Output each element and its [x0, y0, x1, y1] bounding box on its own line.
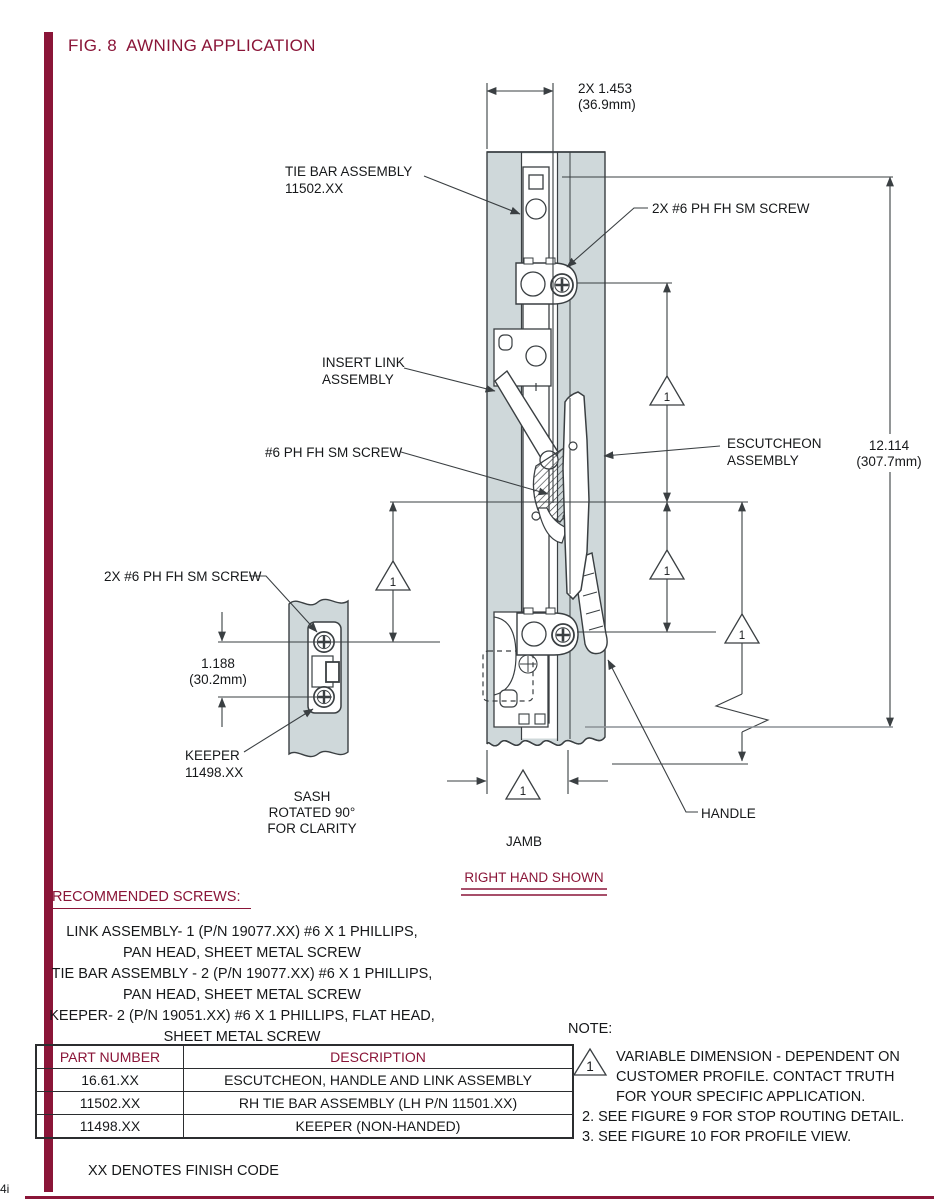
guide-bracket-hole: [526, 346, 546, 366]
label-keeper: KEEPER: [185, 748, 240, 763]
dim-height-mm: (307.7mm): [856, 454, 921, 469]
recommended-screws-section: RECOMMENDED SCREWS: LINK ASSEMBLY- 1 (P/…: [27, 889, 457, 1048]
label-keeper-part: 11498.XX: [185, 765, 243, 780]
screw-item-line: PAN HEAD, SHEET METAL SCREW: [27, 943, 457, 964]
escutcheon-plate: [563, 392, 589, 599]
dim-height-in: 12.114: [869, 438, 910, 453]
label-screw-keeper: 2X #6 PH FH SM SCREW: [104, 569, 262, 584]
description-cell: RH TIE BAR ASSEMBLY (LH P/N 11501.XX): [184, 1092, 574, 1115]
label-sash-3: FOR CLARITY: [267, 821, 356, 836]
description-cell: KEEPER (NON-HANDED): [184, 1115, 574, 1139]
part-number-cell: 16.61.XX: [36, 1069, 184, 1092]
flag-number: 1: [390, 577, 396, 589]
flag-number: 1: [664, 566, 670, 578]
phillips-screw-icon: [552, 624, 574, 646]
technical-drawing: 1 1 1 1 1 2X 1.453 (36.9mm) 12.114 (307.…: [0, 0, 934, 912]
col-header-part-number: PART NUMBER: [36, 1045, 184, 1069]
table-row: 11502.XX RH TIE BAR ASSEMBLY (LH P/N 115…: [36, 1092, 573, 1115]
part-number-cell: 11502.XX: [36, 1092, 184, 1115]
figure-page: FIG. 8 AWNING APPLICATION: [0, 0, 934, 1203]
top-bracket-hole: [521, 272, 545, 296]
col-header-description: DESCRIPTION: [184, 1045, 574, 1069]
top-bracket-tab: [546, 258, 555, 264]
label-tie-bar-assembly: TIE BAR ASSEMBLY: [285, 164, 412, 179]
bottom-rule: [25, 1196, 934, 1199]
dim-width-mm: (36.9mm): [578, 97, 636, 112]
flag-number: 1: [586, 1059, 594, 1074]
label-screw-top: 2X #6 PH FH SM SCREW: [652, 201, 810, 216]
screw-item-line: PAN HEAD, SHEET METAL SCREW: [27, 985, 457, 1006]
label-escutcheon-2: ASSEMBLY: [727, 453, 799, 468]
label-sash-1: SASH: [294, 789, 331, 804]
note-item-3: 3. SEE FIGURE 10 FOR PROFILE VIEW.: [582, 1127, 924, 1147]
label-tie-bar-part: 11502.XX: [285, 181, 343, 196]
note-1-line: CUSTOMER PROFILE. CONTACT TRUTH: [616, 1067, 900, 1087]
page-mark: 4i: [0, 1182, 9, 1196]
bottom-bracket-tab: [546, 608, 555, 614]
bottom-guide-slot: [500, 690, 517, 707]
note-heading: NOTE:: [568, 1019, 924, 1039]
table-row: 11498.XX KEEPER (NON-HANDED): [36, 1115, 573, 1139]
dim-keeper-in: 1.188: [201, 656, 235, 671]
label-handle: HANDLE: [701, 806, 756, 821]
tie-bar-square-hole: [529, 175, 543, 189]
guide-bracket-slot: [499, 335, 512, 350]
phillips-screw-icon: [551, 274, 573, 296]
label-screw-mid: #6 PH FH SM SCREW: [265, 445, 403, 460]
label-escutcheon-1: ESCUTCHEON: [727, 436, 822, 451]
right-hand-shown-label: RIGHT HAND SHOWN: [464, 870, 603, 885]
screw-item-line: TIE BAR ASSEMBLY - 2 (P/N 19077.XX) #6 X…: [27, 964, 457, 985]
bottom-guide-notch: [535, 714, 545, 724]
tie-bar-hole: [526, 199, 546, 219]
note-1-line: VARIABLE DIMENSION - DEPENDENT ON: [616, 1047, 900, 1067]
escutcheon-hole: [569, 442, 577, 450]
flag-number: 1: [739, 630, 745, 642]
label-insert-link-2: ASSEMBLY: [322, 372, 394, 387]
screw-item-line: KEEPER- 2 (P/N 19051.XX) #6 X 1 PHILLIPS…: [27, 1006, 457, 1027]
table-row: 16.61.XX ESCUTCHEON, HANDLE AND LINK ASS…: [36, 1069, 573, 1092]
finish-code-note: XX DENOTES FINISH CODE: [88, 1163, 279, 1179]
recommended-screws-heading: RECOMMENDED SCREWS:: [50, 889, 251, 909]
dim-keeper-mm: (30.2mm): [189, 672, 247, 687]
note-section: NOTE: 1 VARIABLE DIMENSION - DEPENDENT O…: [568, 1019, 924, 1147]
label-sash-2: ROTATED 90°: [269, 805, 356, 820]
table-header-row: PART NUMBER DESCRIPTION: [36, 1045, 573, 1069]
screw-item-line: LINK ASSEMBLY- 1 (P/N 19077.XX) #6 X 1 P…: [27, 922, 457, 943]
keeper-pin-dashed: [519, 655, 537, 673]
description-cell: ESCUTCHEON, HANDLE AND LINK ASSEMBLY: [184, 1069, 574, 1092]
variable-dim-flag-icon: 1: [568, 1045, 612, 1081]
bottom-bracket-tab: [524, 608, 533, 614]
part-number-cell: 11498.XX: [36, 1115, 184, 1139]
note-1-line: FOR YOUR SPECIFIC APPLICATION.: [616, 1087, 900, 1107]
top-bracket-tab: [524, 258, 533, 264]
label-jamb: JAMB: [506, 834, 542, 849]
parts-table: PART NUMBER DESCRIPTION 16.61.XX ESCUTCH…: [35, 1044, 574, 1139]
bottom-guide-notch: [519, 714, 529, 724]
note-item-2: 2. SEE FIGURE 9 FOR STOP ROUTING DETAIL.: [582, 1107, 924, 1127]
dim-width-in: 2X 1.453: [578, 81, 632, 96]
bottom-bracket-hole: [522, 622, 546, 646]
note-item-1: 1 VARIABLE DIMENSION - DEPENDENT ON CUST…: [568, 1047, 924, 1107]
flag-number: 1: [664, 392, 670, 404]
keeper-tab: [326, 662, 339, 682]
flag-number: 1: [520, 786, 526, 798]
label-insert-link-1: INSERT LINK: [322, 355, 405, 370]
